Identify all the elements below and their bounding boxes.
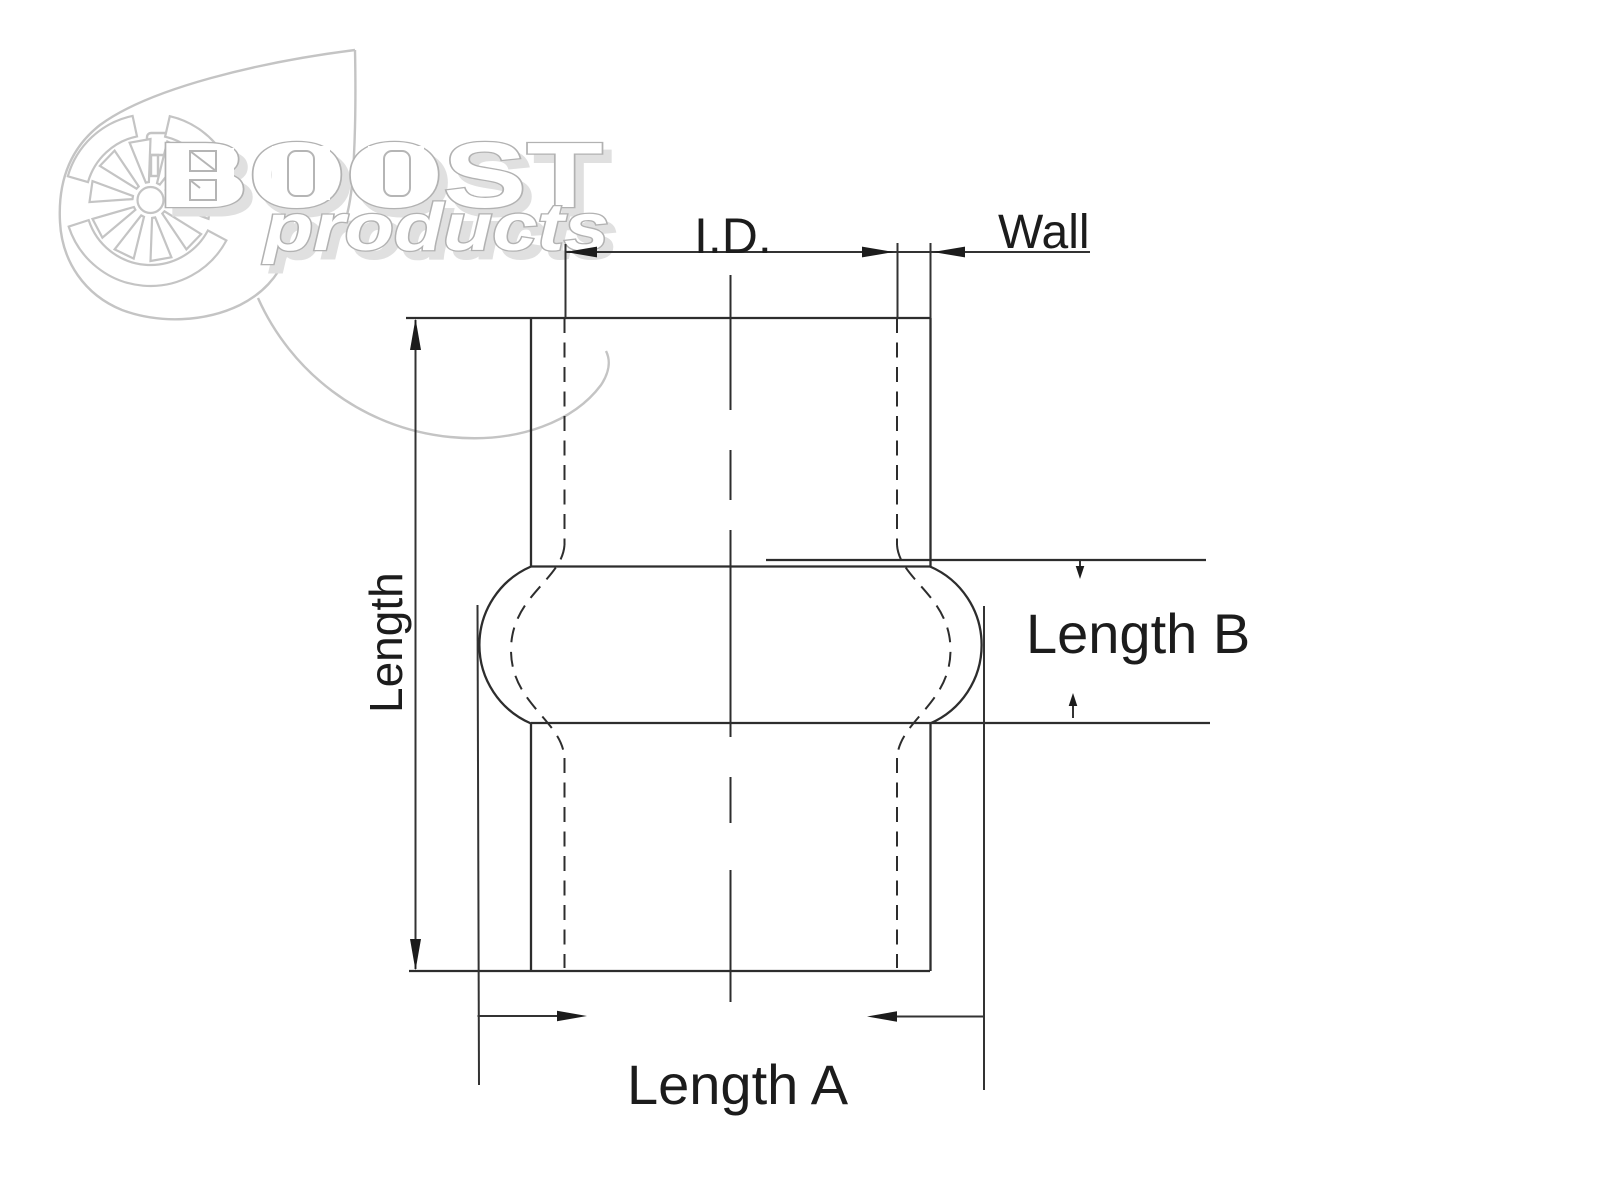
- svg-text:Wall: Wall: [998, 206, 1090, 259]
- svg-text:products: products: [262, 190, 609, 265]
- svg-text:Length: Length: [360, 572, 412, 713]
- svg-text:Length A: Length A: [627, 1053, 849, 1116]
- svg-text:I.D.: I.D.: [694, 208, 772, 264]
- svg-text:Length B: Length B: [1026, 602, 1250, 665]
